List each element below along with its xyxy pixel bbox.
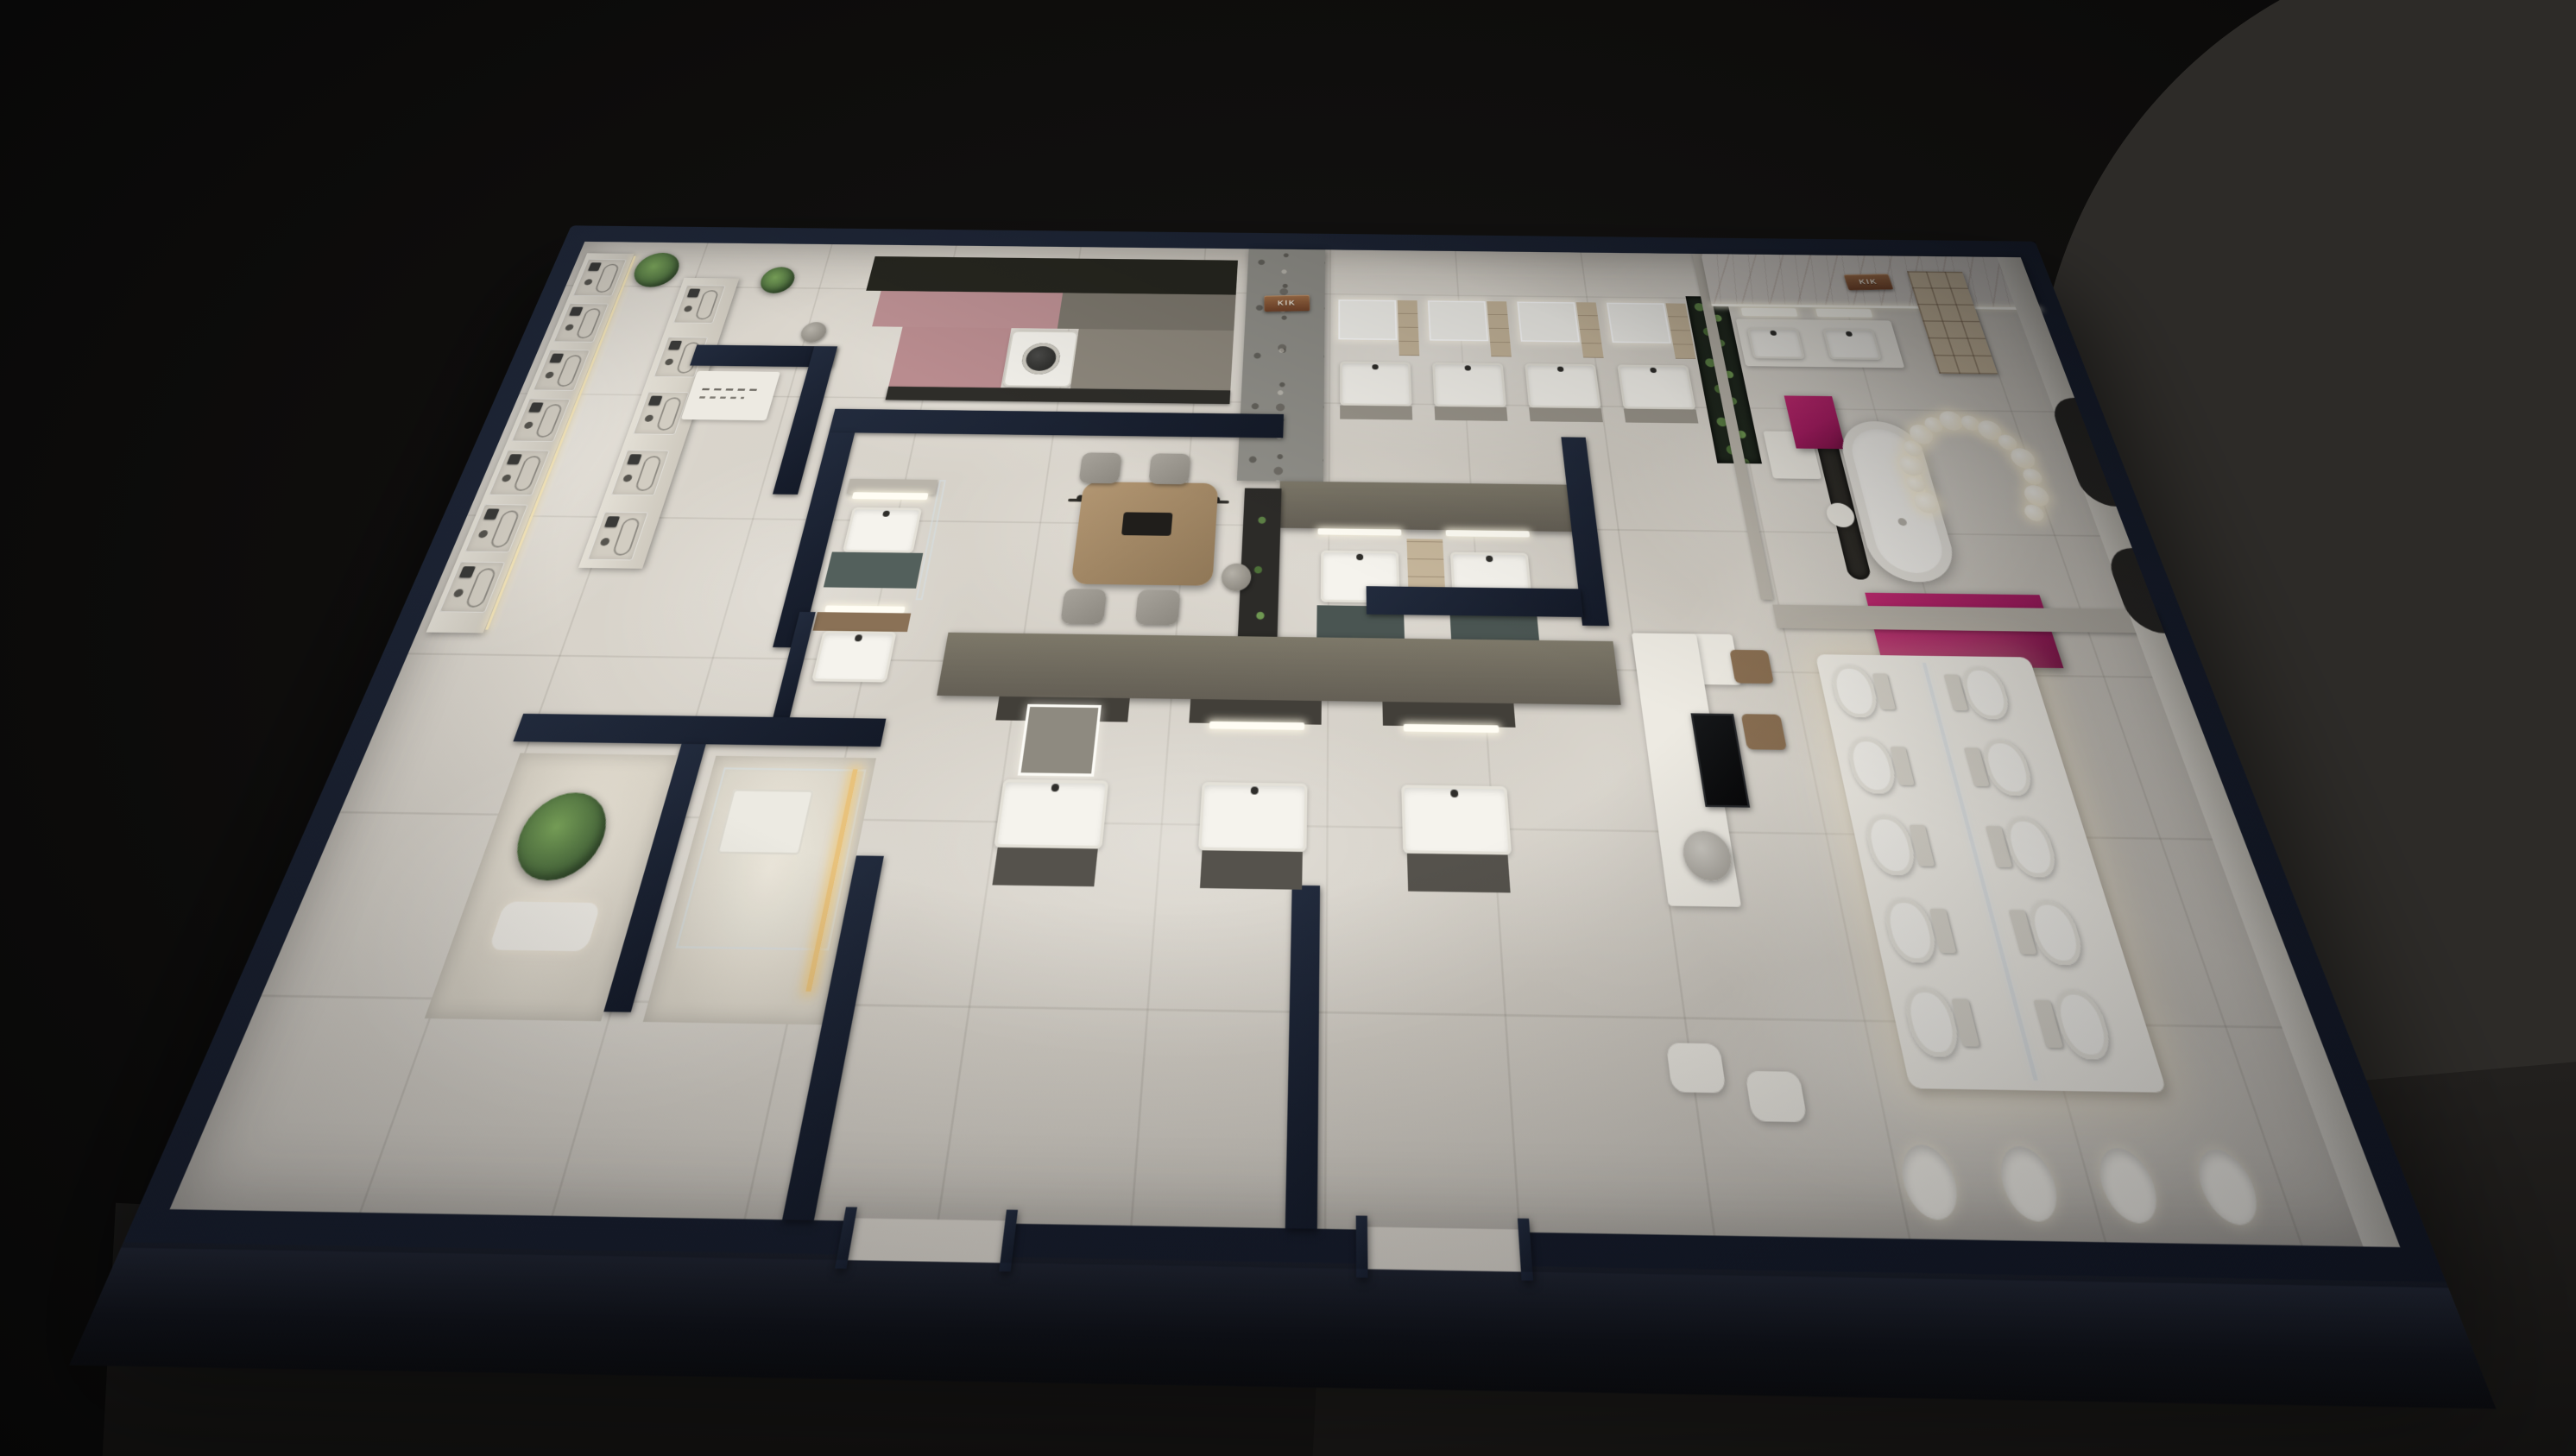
vanity-cabinet xyxy=(1435,407,1508,421)
corridor-partition-wall xyxy=(937,633,1621,705)
toilet xyxy=(2028,990,2116,1060)
faucet-handle xyxy=(622,475,634,482)
toilet-bowl xyxy=(1979,740,2037,796)
mirror-light xyxy=(1209,722,1305,730)
toilet xyxy=(1901,987,1986,1057)
alcove-wall xyxy=(513,714,886,747)
bench-stool xyxy=(1745,1071,1808,1122)
toilet xyxy=(1862,815,1940,875)
mirror-light xyxy=(1317,528,1401,535)
toilet xyxy=(1845,738,1919,795)
shelf-cubby xyxy=(1398,300,1420,356)
vanity-cabinet xyxy=(1624,409,1699,424)
shower-panel xyxy=(587,512,648,561)
urinal xyxy=(2189,1149,2266,1226)
vanity-unit-corridor xyxy=(1382,702,1529,902)
lamp-globe xyxy=(2008,448,2038,469)
entrance-opening xyxy=(843,1218,1012,1263)
faucet-handle xyxy=(452,589,464,597)
faucet-handle xyxy=(477,530,489,538)
door-jamb xyxy=(1356,1215,1368,1277)
wash-basin xyxy=(1617,364,1695,409)
dining-chair xyxy=(1148,453,1190,484)
shelf-cubby xyxy=(1487,301,1512,356)
toilet xyxy=(1981,816,2061,877)
urinal xyxy=(2092,1148,2166,1224)
partition-fin-wall xyxy=(1285,886,1320,1229)
vanity-cabinet xyxy=(1407,854,1511,893)
mirror-light xyxy=(1741,308,1798,317)
faucet-handle xyxy=(599,538,610,545)
lamp-globe xyxy=(1904,476,1928,492)
mirror-light xyxy=(852,492,929,500)
brand-sign-text: KIK xyxy=(1278,299,1297,306)
rain-shower-head xyxy=(483,508,500,520)
toilet-bowl xyxy=(2000,817,2061,878)
teal-vanity-cabinet xyxy=(824,552,923,588)
shower-panel xyxy=(633,392,690,435)
dining-chair xyxy=(1135,589,1181,625)
wash-basin xyxy=(843,507,922,553)
vanity-unit-top xyxy=(1427,293,1522,459)
vanity-unit-corridor xyxy=(1178,699,1322,898)
mirror xyxy=(1428,300,1488,341)
wash-basin xyxy=(1822,329,1882,360)
island-partition-wall xyxy=(1279,481,1576,532)
wood-counter xyxy=(813,612,912,632)
rain-shower-head xyxy=(507,454,522,464)
wash-basin xyxy=(811,631,897,683)
shower-panel xyxy=(673,285,726,323)
wood-side-table xyxy=(1729,650,1774,684)
stone-feature-wall xyxy=(1237,249,1325,482)
brand-sign-stone: KIK xyxy=(1264,295,1310,312)
wash-basin xyxy=(1525,363,1601,408)
brand-sign-text: KIK xyxy=(1858,279,1878,286)
faucet-handle xyxy=(664,359,674,366)
rain-shower-head xyxy=(648,396,663,406)
toilet xyxy=(1960,739,2036,796)
rain-shower-head xyxy=(549,354,564,363)
faucet-handle xyxy=(501,475,512,482)
rain-shower-head xyxy=(668,341,682,350)
pink-upper-cabinet xyxy=(872,291,1063,329)
brand-sign-marble: KIK xyxy=(1844,274,1894,290)
toilet xyxy=(1880,898,1960,963)
toilet xyxy=(2004,900,2087,966)
vanity-cabinet xyxy=(1340,406,1412,420)
vanity-cabinet xyxy=(1529,407,1603,422)
vanity-unit-corridor xyxy=(969,696,1129,896)
urinal xyxy=(1993,1146,2064,1222)
mirror-light xyxy=(1446,530,1530,537)
urinal-display-row xyxy=(1892,1137,2326,1238)
wood-side-table xyxy=(1741,714,1787,750)
vanity-display-row-top xyxy=(1332,293,1728,470)
coffee-tray xyxy=(1121,512,1173,535)
vanity-unit-top xyxy=(1516,294,1619,461)
toilet xyxy=(1940,666,2014,719)
shower-tray xyxy=(717,789,814,854)
vanity-cabinet xyxy=(1200,850,1303,890)
faucet-handle xyxy=(565,325,575,331)
vanity-display-row-corridor xyxy=(901,696,1646,904)
pink-base-cabinet xyxy=(888,327,1012,389)
lamp-globe xyxy=(2022,504,2046,521)
taupe-counter xyxy=(1058,293,1236,331)
reception-desk xyxy=(681,371,780,420)
mirror-light xyxy=(1815,309,1872,318)
wash-basin xyxy=(1432,362,1506,407)
toilet-bowl xyxy=(1958,666,2014,719)
faucet-handle xyxy=(523,422,534,429)
lamp-globe xyxy=(1911,492,1941,514)
wash-basin xyxy=(1340,362,1411,407)
toilet xyxy=(1828,665,1900,717)
lamp-globe xyxy=(1897,455,1926,476)
lamp-globe xyxy=(2021,469,2045,485)
wash-basin xyxy=(1198,782,1308,852)
rain-shower-head xyxy=(528,402,544,412)
lamp-globe xyxy=(2021,485,2052,507)
rain-shower-head xyxy=(604,516,620,527)
mirror xyxy=(1517,301,1580,342)
mirror-light xyxy=(1404,724,1500,733)
rain-shower-head xyxy=(459,566,476,577)
dining-chair xyxy=(1079,452,1122,483)
washing-machine xyxy=(1002,331,1078,388)
faucet-handle xyxy=(584,279,594,285)
pebble-mat xyxy=(489,901,602,951)
back-cabinet xyxy=(1189,699,1321,725)
entrance-opening xyxy=(1363,1226,1528,1271)
desk-partition-cap xyxy=(1367,586,1583,617)
rain-shower-head xyxy=(627,454,641,464)
faucet-handle xyxy=(644,415,654,422)
scene-viewport: KIK xyxy=(0,0,2576,1456)
mirror xyxy=(1338,299,1397,340)
back-cabinet xyxy=(1382,702,1515,728)
shelf-cubby xyxy=(1576,302,1604,357)
vanity-cabinet xyxy=(992,848,1097,886)
wash-basin xyxy=(1746,328,1805,359)
vanity-unit-top xyxy=(1338,293,1425,458)
toilet-bowl xyxy=(2049,990,2117,1060)
wash-basin xyxy=(1401,785,1512,854)
framed-mirror xyxy=(1018,704,1102,777)
mirror xyxy=(1607,303,1671,344)
taupe-base-cabinet xyxy=(1070,329,1234,392)
toilet-bowl xyxy=(2024,900,2087,965)
bench-stool xyxy=(1666,1043,1727,1093)
wash-basin xyxy=(994,779,1108,849)
dining-chair xyxy=(1060,589,1107,624)
faucet-handle xyxy=(544,372,554,379)
upper-cabinet-run xyxy=(866,256,1238,295)
rain-shower-head xyxy=(569,307,583,316)
faucet-handle xyxy=(683,306,692,312)
rain-shower-head xyxy=(588,262,602,271)
shower-panel xyxy=(611,450,670,495)
rain-shower-head xyxy=(687,288,701,297)
